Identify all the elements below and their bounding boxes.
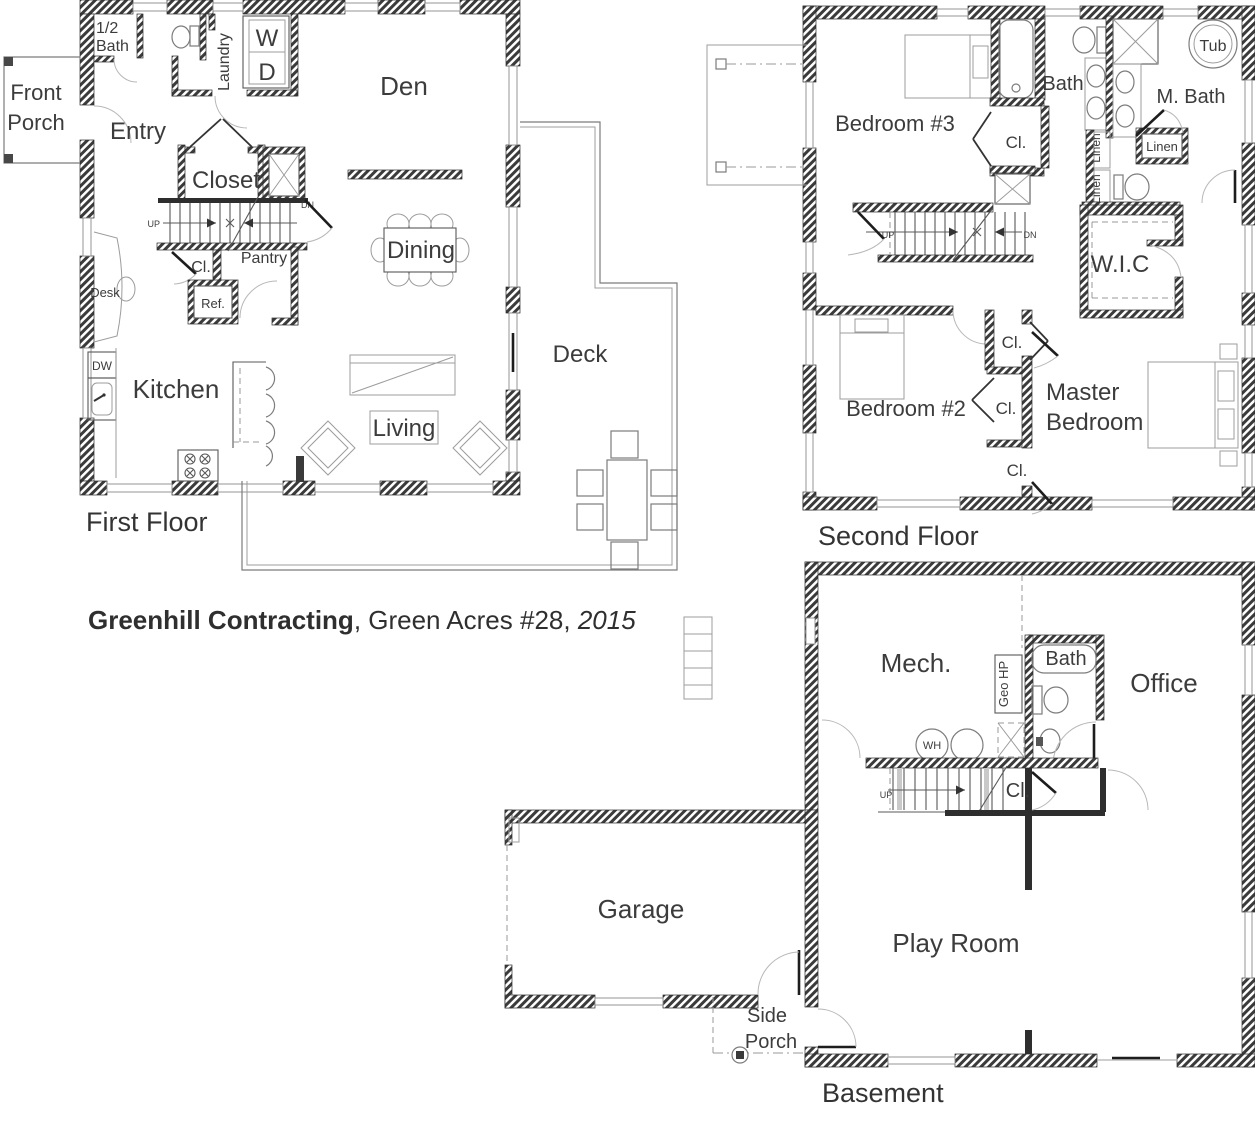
stairs-up-label: UP — [880, 790, 893, 800]
washer-label: W — [256, 25, 279, 52]
entry-label: Entry — [110, 118, 166, 145]
side-porch-label-2: Porch — [745, 1031, 797, 1053]
master-label-1: Master — [1046, 379, 1119, 406]
project-year: 2015 — [577, 605, 636, 635]
wic-label: W.I.C — [1091, 251, 1150, 278]
basement-bath-label: Bath — [1045, 648, 1086, 670]
sheet-title: Greenhill Contracting, Green Acres #28, … — [88, 605, 636, 635]
closet-label: Cl. — [1007, 461, 1028, 480]
hall-closet-label: Cl. — [191, 259, 211, 276]
side-table — [296, 456, 304, 482]
play-room-label: Play Room — [892, 928, 1019, 958]
closet-label: Cl. — [996, 399, 1017, 418]
bedroom3-label: Bedroom #3 — [835, 111, 955, 136]
refrigerator-label: Ref. — [201, 296, 225, 311]
second-floor-caption: Second Floor — [818, 521, 979, 551]
builder-name: Greenhill Contracting — [88, 605, 354, 635]
master-label-2: Bedroom — [1046, 409, 1143, 436]
living-label: Living — [373, 415, 436, 442]
linen-closet-boxed: Linen — [1136, 128, 1188, 164]
tub-label: Tub — [1200, 38, 1227, 55]
laundry-label: Laundry — [216, 33, 233, 91]
closet-label: Closet — [192, 167, 260, 194]
half-bath-label-1: 1/2 — [96, 20, 118, 37]
linen-label: Linen — [1146, 139, 1178, 154]
side-porch-label-1: Side — [747, 1005, 787, 1027]
porch-post — [4, 57, 13, 66]
kitchen-label: Kitchen — [133, 374, 220, 404]
mech-label: Mech. — [881, 648, 952, 678]
front-porch-label-1: Front — [10, 80, 61, 105]
half-bath-label-2: Bath — [96, 38, 129, 55]
stairs-up-label: UP — [147, 219, 160, 229]
bath-label: Bath — [1042, 73, 1083, 95]
first-floor-caption: First Floor — [86, 507, 208, 537]
master-bath-label: M. Bath — [1157, 86, 1226, 108]
front-porch-label-2: Porch — [7, 110, 64, 135]
closet-label: Cl. — [1006, 133, 1027, 152]
porch-post — [4, 154, 13, 163]
floor-plan-drawing: Front Porch W D 1/2 Bath Laundry Entry D… — [0, 0, 1255, 1141]
deck-label: Deck — [553, 341, 609, 368]
closet-label: Cl. — [1002, 333, 1023, 352]
desk-label: Desk — [90, 285, 120, 300]
dishwasher-label: DW — [92, 359, 113, 373]
den-label: Den — [380, 71, 428, 101]
bedroom2-label: Bedroom #2 — [846, 396, 966, 421]
linen-label: Linen — [1089, 133, 1103, 162]
floor-plan-sheet: Front Porch W D 1/2 Bath Laundry Entry D… — [0, 0, 1255, 1141]
pantry-label: Pantry — [241, 250, 287, 267]
dining-label: Dining — [387, 237, 455, 264]
den-half-wall — [348, 170, 462, 179]
basement-caption: Basement — [822, 1078, 944, 1108]
stairs-dn-label: DN — [1024, 230, 1037, 240]
linen-label: Linen — [1089, 174, 1103, 203]
closet-label: Cl. — [1006, 780, 1030, 802]
dryer-label: D — [258, 59, 275, 86]
geo-hp-label: Geo HP — [996, 661, 1011, 707]
garage-label: Garage — [598, 894, 685, 924]
wh-label: WH — [923, 740, 941, 752]
project-name: , Green Acres #28, — [354, 605, 578, 635]
office-label: Office — [1130, 668, 1197, 698]
